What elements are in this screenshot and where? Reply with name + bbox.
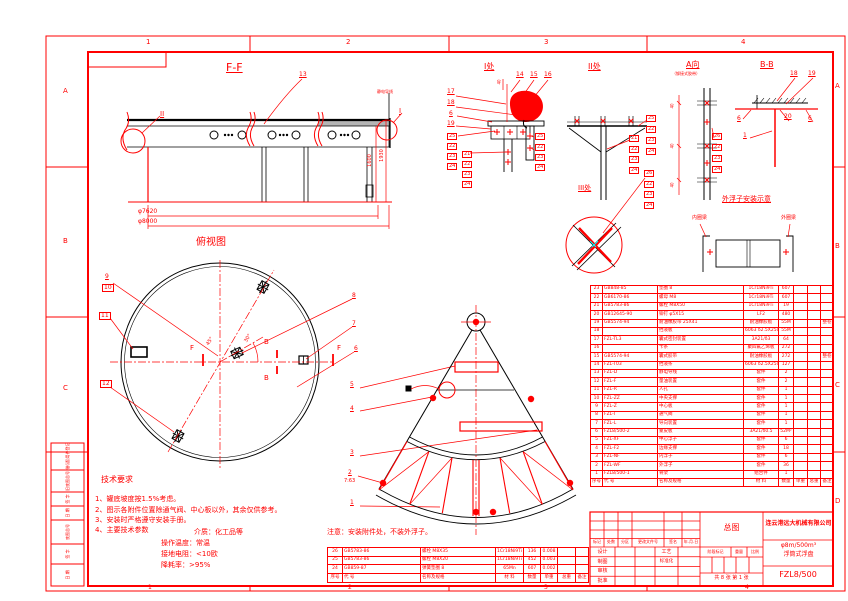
table-cell	[794, 286, 808, 294]
strip-field: 日 期	[66, 557, 70, 593]
callout-22: 22	[712, 144, 722, 151]
table-cell	[794, 302, 808, 310]
table-row: 17FZL-TL3囊式密封装置3A21/δ364	[591, 336, 834, 344]
callout-25: 25	[447, 133, 457, 140]
table-cell	[794, 386, 808, 394]
table-cell	[808, 286, 821, 294]
table-cell	[808, 319, 821, 327]
table-cell: 19	[779, 302, 794, 310]
bom-table: 23GB848-85垫圈 81Cr18Ni9Ti60722GB6170-86螺母…	[590, 285, 834, 487]
table-cell: 3	[591, 453, 603, 461]
table-cell: FZL-XF	[603, 437, 658, 445]
callout-22: 22	[535, 144, 545, 151]
table-cell: 6	[779, 453, 794, 461]
table-cell	[821, 302, 834, 310]
table-cell: 12	[591, 378, 603, 386]
view-title-A: A向	[686, 61, 699, 69]
table-cell: GB859-87	[343, 565, 421, 574]
drawing-number: FZL8/500	[763, 571, 833, 579]
callout-15: 15	[530, 72, 538, 78]
outer-ring-beam-label: 外圈梁	[781, 216, 796, 221]
table-row: 5FZL-XF中心浮子套件6	[591, 437, 834, 445]
callout-7: 7	[352, 321, 356, 327]
table-cell: 13	[591, 369, 603, 377]
table-cell	[821, 437, 834, 445]
table-row: 19GB5574-94耐油橡胶带 25X41耐油橡胶板55M整卷	[591, 319, 834, 327]
table-cell	[794, 361, 808, 369]
table-cell: 22	[591, 294, 603, 302]
table-cell	[808, 336, 821, 344]
table-row: 16卡条聚四氟乙烯板272	[591, 344, 834, 352]
table-cell	[794, 453, 808, 461]
callout-24: 24	[712, 166, 722, 173]
callout-22: 22	[646, 126, 656, 133]
table-cell: GB5783-86	[343, 556, 421, 565]
table-cell	[794, 353, 808, 361]
table-cell: 127	[779, 361, 794, 369]
viewA-linework	[677, 88, 717, 200]
table-header-cell: 序号	[328, 574, 343, 583]
sig-label-process: 工艺	[655, 550, 678, 555]
callout-16: 16	[544, 72, 552, 78]
table-cell: 蒙皮板	[658, 428, 744, 436]
detail2-linework	[567, 116, 647, 233]
table-header-cell: 名称及规格	[421, 574, 496, 583]
dim-40: 40	[671, 182, 675, 187]
table-cell: 1	[779, 420, 794, 428]
detail3-linework	[566, 217, 622, 273]
table-cell: 耐油橡胶板	[744, 319, 779, 327]
zone-right-D: D	[835, 498, 840, 505]
detail-marker-I: I	[399, 108, 401, 115]
table-cell: 23	[591, 286, 603, 294]
table-cell	[808, 395, 821, 403]
table-cell: 18	[591, 327, 603, 335]
sig-label-design: 设计	[590, 550, 615, 555]
callout-14: 14	[516, 72, 524, 78]
callout-12: 12	[100, 380, 112, 388]
table-cell: 452	[524, 556, 541, 565]
table-cell: 中心浮子	[658, 437, 744, 445]
table-cell: 1Cr18Ni9Ti	[744, 294, 779, 302]
callout-19: 19	[808, 71, 816, 77]
zone-top-4: 4	[741, 39, 745, 46]
rev-header: 更改文件号	[632, 540, 664, 544]
table-cell	[808, 420, 821, 428]
table-cell: 64	[779, 336, 794, 344]
zone-left-C: C	[63, 385, 68, 392]
callout-24: 24	[629, 167, 639, 174]
table-cell: 套件	[744, 437, 779, 445]
table-cell	[808, 445, 821, 453]
table-cell: 16	[591, 344, 603, 352]
bb-linework	[735, 78, 818, 167]
table-cell: 中心板	[658, 403, 744, 411]
table-cell: 1Cr18Ni9Ti	[496, 556, 524, 565]
callout-23: 23	[712, 155, 722, 162]
zone-bottom-3: 3	[544, 585, 548, 591]
table-cell: 1	[779, 395, 794, 403]
table-cell	[808, 361, 821, 369]
dim-dia-7620: φ7620	[138, 209, 157, 215]
table-row: 18挡液板6063 δ2.5X25055M	[591, 327, 834, 335]
section-mark-B-top: B	[264, 339, 269, 346]
table-cell: 55M	[779, 327, 794, 335]
table-cell: 垫圈 8	[658, 286, 744, 294]
ff-view-linework	[121, 79, 402, 229]
callout-22: 22	[447, 143, 457, 150]
table-row: 1FZL8/500-1骨架组合件1	[591, 470, 834, 478]
table-row: 23GB848-85垫圈 81Cr18Ni9Ti607	[591, 286, 834, 294]
table-cell: 中央支撑	[658, 395, 744, 403]
table-header-cell: 代 号	[603, 478, 658, 486]
stage-mark-label: 阶段标记	[700, 550, 731, 554]
table-cell	[794, 445, 808, 453]
callout-9: 9	[105, 274, 109, 280]
callout-25: 25	[646, 115, 656, 122]
table-header-cell: 备注	[821, 478, 834, 486]
table-cell: 边缘支撑	[658, 445, 744, 453]
table-row: 25GB5783-86螺栓 M8X201Cr18Ni9Ti4520.003	[328, 556, 589, 565]
table-cell: FZL-ZZ	[603, 395, 658, 403]
table-cell: 套件	[744, 395, 779, 403]
callout-22: 22	[644, 181, 654, 188]
callout-24: 24	[535, 164, 545, 171]
table-cell	[576, 548, 589, 557]
weight-label: 重量	[731, 550, 747, 554]
table-cell	[808, 437, 821, 445]
table-cell: 9	[591, 403, 603, 411]
callout-22: 22	[462, 161, 472, 168]
table-header-cell: 总重	[808, 478, 821, 486]
table-row: 26GB5783-86螺栓 M8X351Cr18Ni9Ti1360.008	[328, 548, 589, 557]
table-cell	[794, 369, 808, 377]
table-cell: 2	[779, 378, 794, 386]
callout-8: 8	[352, 293, 356, 299]
table-cell: 2	[779, 369, 794, 377]
table-header-cell: 材 料	[744, 478, 779, 486]
table-header-cell: 数量	[779, 478, 794, 486]
table-row: 24GB859-87弹簧垫圈 865Mn6070.002	[328, 565, 589, 574]
zone-right-C: C	[835, 382, 840, 389]
table-row: 13FZL-D静电导线套件2	[591, 369, 834, 377]
sig-label-check: 审核	[590, 569, 615, 574]
table-cell: 0.008	[541, 548, 558, 557]
table-cell: 2	[591, 462, 603, 470]
static-wire-label: 静电导线	[377, 90, 393, 94]
table-cell: GB5574-94	[603, 319, 658, 327]
table-cell	[808, 411, 821, 419]
table-header-cell: 单重	[541, 574, 558, 583]
table-cell: 螺栓 M8X35	[421, 548, 496, 557]
table-header-cell: 单重	[794, 478, 808, 486]
table-cell	[808, 353, 821, 361]
callout-6: 6	[737, 116, 741, 122]
table-header-cell: 代 号	[343, 574, 421, 583]
tech-param: 操作温度：常温	[161, 540, 210, 547]
table-cell	[821, 420, 834, 428]
table-cell: 铆钉 φ5X15	[658, 311, 744, 319]
table-cell: 1Cr18Ni9Ti	[496, 548, 524, 557]
callout-23: 23	[535, 154, 545, 161]
table-cell	[794, 327, 808, 335]
company-name: 连云港远大机械有限公司	[764, 521, 833, 527]
callout-21: 21	[462, 151, 472, 158]
zone-right-B: B	[835, 243, 840, 250]
table-cell: 14	[591, 361, 603, 369]
table-cell	[821, 428, 834, 436]
dim-40: 40	[671, 143, 675, 148]
table-cell: FZL-T	[603, 411, 658, 419]
section-mark-B-bottom: B	[264, 375, 269, 382]
callout-1: 1	[743, 133, 747, 139]
callout-21: 21	[629, 135, 639, 142]
zone-left-A: A	[63, 88, 68, 95]
table-cell: FZL-Z	[603, 403, 658, 411]
callout-23: 23	[644, 191, 654, 198]
table-cell: 15	[591, 353, 603, 361]
table-cell: 套件	[744, 453, 779, 461]
table-cell	[794, 378, 808, 386]
callout-24: 24	[447, 163, 457, 170]
table-cell	[821, 386, 834, 394]
dim-1930: 1930	[380, 149, 385, 162]
table-cell: FZL-TL3	[603, 336, 658, 344]
callout-18: 18	[447, 100, 455, 106]
table-cell: 8	[591, 411, 603, 419]
inner-ring-beam-label: 内圈梁	[692, 216, 707, 221]
table-cell: FZL-NF	[603, 453, 658, 461]
table-cell	[821, 470, 834, 478]
table-cell: 1	[779, 403, 794, 411]
zone-right-A: A	[835, 83, 840, 90]
view-title-plan: 俯视图	[196, 238, 226, 248]
table-cell: 36	[779, 462, 794, 470]
table-cell: 挡液条	[658, 361, 744, 369]
callout-6: 6	[354, 346, 358, 352]
table-cell: 套件	[744, 386, 779, 394]
callout-3: 3	[350, 450, 354, 456]
table-cell: 套件	[744, 403, 779, 411]
tech-param: 介质：化工品等	[194, 529, 243, 536]
table-cell: 607	[524, 565, 541, 574]
drawing-sheet: 1 2 3 4 1 2 3 4 A B C A B C D 借(通)用件登记 旧…	[0, 0, 848, 601]
table-cell	[794, 470, 808, 478]
table-cell: 18	[779, 445, 794, 453]
view-A-subtitle: （铆接式胶带）	[672, 72, 700, 76]
table-header-cell: 数量	[524, 574, 541, 583]
callout-26: 26	[644, 170, 654, 177]
table-header-cell: 序号	[591, 478, 603, 486]
table-cell: 螺栓 M8X20	[421, 556, 496, 565]
table-cell: 607	[779, 286, 794, 294]
table-cell: 通气阀	[658, 411, 744, 419]
tech-param: 接地电阻：<10欧	[161, 551, 218, 558]
table-cell: 1	[779, 470, 794, 478]
sig-label-standard: 标准化	[655, 560, 678, 565]
callout-6: 6	[808, 116, 812, 122]
table-cell: 4	[591, 445, 603, 453]
table-row: 2FZL-WF外浮子套件36	[591, 462, 834, 470]
table-cell: 螺栓 M8X50	[658, 302, 744, 310]
detail-marker-II: II	[160, 111, 164, 118]
table-cell: 内浮子	[658, 453, 744, 461]
table-cell	[821, 294, 834, 302]
table-cell	[576, 556, 589, 565]
table-cell: 套件	[744, 411, 779, 419]
table-cell: 卡条	[658, 344, 744, 352]
table-cell	[821, 453, 834, 461]
zone-left-B: B	[63, 238, 68, 245]
table-header-cell: 材 料	[496, 574, 524, 583]
rev-header: 分区	[618, 540, 632, 544]
callout-23: 23	[629, 156, 639, 163]
table-cell: 1	[591, 470, 603, 478]
table-cell: 0.002	[541, 565, 558, 574]
callout-17: 17	[447, 89, 455, 95]
table-row: 22GB6170-86螺母 M81Cr18Ni9Ti607	[591, 294, 834, 302]
table-cell	[808, 327, 821, 335]
table-cell: 19	[591, 319, 603, 327]
dim-40: 40	[671, 103, 675, 108]
table-cell: FZL-F2	[603, 445, 658, 453]
table-cell: 弹簧垫圈 8	[421, 565, 496, 574]
callout-10: 10	[102, 284, 114, 292]
zone-bottom-2: 2	[348, 585, 352, 591]
section-title-BB: B-B	[760, 61, 774, 69]
section-mark-F-left: F	[190, 345, 194, 352]
table-cell	[821, 369, 834, 377]
table-cell	[808, 470, 821, 478]
table-row: 21GB5783-86螺栓 M8X501Cr18Ni9Ti19	[591, 302, 834, 310]
table-header-cell: 总重	[558, 574, 576, 583]
table-cell	[808, 428, 821, 436]
table-cell	[794, 428, 808, 436]
callout-2: 2	[348, 470, 352, 476]
rev-header: 年.月.日	[682, 540, 700, 544]
table-cell: LF2	[744, 311, 779, 319]
table-cell	[794, 462, 808, 470]
table-cell: FZL-F	[603, 378, 658, 386]
table-cell: 20	[591, 311, 603, 319]
tech-item: 2、图示各附件位置除通气阀、中心板以外，其余仅供参考。	[95, 507, 281, 514]
table-cell: 10	[591, 395, 603, 403]
table-cell	[794, 336, 808, 344]
table-row: 20GB12645-90铆钉 φ5X15LF2480	[591, 311, 834, 319]
table-cell: 6063 δ2.5X250	[744, 327, 779, 335]
callout-23: 23	[462, 171, 472, 178]
table-cell	[558, 548, 576, 557]
callout-13: 13	[299, 72, 307, 78]
zone-bottom-1: 1	[148, 585, 152, 591]
table-cell: 480	[779, 311, 794, 319]
table-cell: 3A21/δ3	[744, 336, 779, 344]
table-cell	[808, 311, 821, 319]
section-mark-F-right: F	[337, 345, 341, 352]
table-cell: 25	[328, 556, 343, 565]
table-cell: 骨架	[658, 470, 744, 478]
product-spec: φ8m/500m³	[764, 543, 833, 549]
table-cell	[794, 311, 808, 319]
table-header-cell: 名称及规格	[658, 478, 744, 486]
table-cell	[794, 395, 808, 403]
detail-title-I: I处	[484, 63, 494, 71]
product-name: 浮筒式浮盘	[764, 552, 833, 558]
table-cell: 26	[328, 548, 343, 557]
table-cell	[808, 369, 821, 377]
table-cell: 21	[591, 302, 603, 310]
callout-24: 24	[462, 181, 472, 188]
table-cell: 套件	[744, 420, 779, 428]
table-cell: 耐油橡胶板	[744, 353, 779, 361]
table-cell: 6	[591, 428, 603, 436]
table-cell	[794, 319, 808, 327]
rev-header: 签名	[664, 540, 682, 544]
callout-6: 6	[449, 111, 453, 117]
table-cell: FZL-D	[603, 369, 658, 377]
table-row: 4FZL-F2边缘支撑套件18	[591, 445, 834, 453]
table-cell: GB6170-86	[603, 294, 658, 302]
table-cell: 24	[328, 565, 343, 574]
table-cell: FZL-WF	[603, 462, 658, 470]
table-cell	[821, 327, 834, 335]
zone-top-2: 2	[346, 39, 350, 46]
table-cell	[808, 344, 821, 352]
table-header-row: 序号代 号名称及规格材 料数量单重总重备注	[591, 478, 834, 486]
table-cell: 6	[779, 437, 794, 445]
table-cell: 挡液板	[658, 327, 744, 335]
table-cell	[808, 302, 821, 310]
table-cell: 0.003	[541, 556, 558, 565]
section-title-ff: F-F	[226, 62, 243, 73]
table-cell	[808, 378, 821, 386]
table-cell	[821, 462, 834, 470]
table-row: 3FZL-NF内浮子套件6	[591, 453, 834, 461]
table-row: 15GB5574-94囊式胶带耐油橡胶板272整卷	[591, 353, 834, 361]
zone-bottom-4: 4	[745, 585, 749, 591]
drawing-type-title: 总图	[700, 524, 763, 532]
table-header-cell: 备注	[576, 574, 589, 583]
table-cell: 套件	[744, 462, 779, 470]
zone-top-1: 1	[146, 39, 150, 46]
table-cell	[808, 386, 821, 394]
table-cell: GB5574-94	[603, 353, 658, 361]
table-cell: 量油装置	[658, 378, 744, 386]
tech-heading: 技术要求	[101, 476, 133, 484]
table-cell: GB848-85	[603, 286, 658, 294]
table-cell: 1	[779, 386, 794, 394]
callout-11: 11	[99, 312, 111, 320]
table-cell: 囊式密封装置	[658, 336, 744, 344]
table-cell	[821, 311, 834, 319]
table-cell	[821, 361, 834, 369]
table-cell: 整卷	[821, 319, 834, 327]
callout-25: 25	[535, 133, 545, 140]
table-cell: 1Cr18Ni9Ti	[744, 286, 779, 294]
table-cell	[821, 286, 834, 294]
rev-header: 标记	[590, 540, 604, 544]
table-row: 14FZL-T03挡液条6063 δ2.5X250127	[591, 361, 834, 369]
table-cell	[808, 462, 821, 470]
dim-40: 40	[498, 79, 502, 84]
rev-header: 处数	[604, 540, 618, 544]
sheet-count: 共 8 张 第 1 张	[700, 576, 763, 581]
table-cell: FZL-R	[603, 386, 658, 394]
table-row: 11FZL-R人孔套件1	[591, 386, 834, 394]
callout-23: 23	[447, 153, 457, 160]
table-cell	[794, 411, 808, 419]
detail-title-III: III处	[578, 185, 591, 192]
